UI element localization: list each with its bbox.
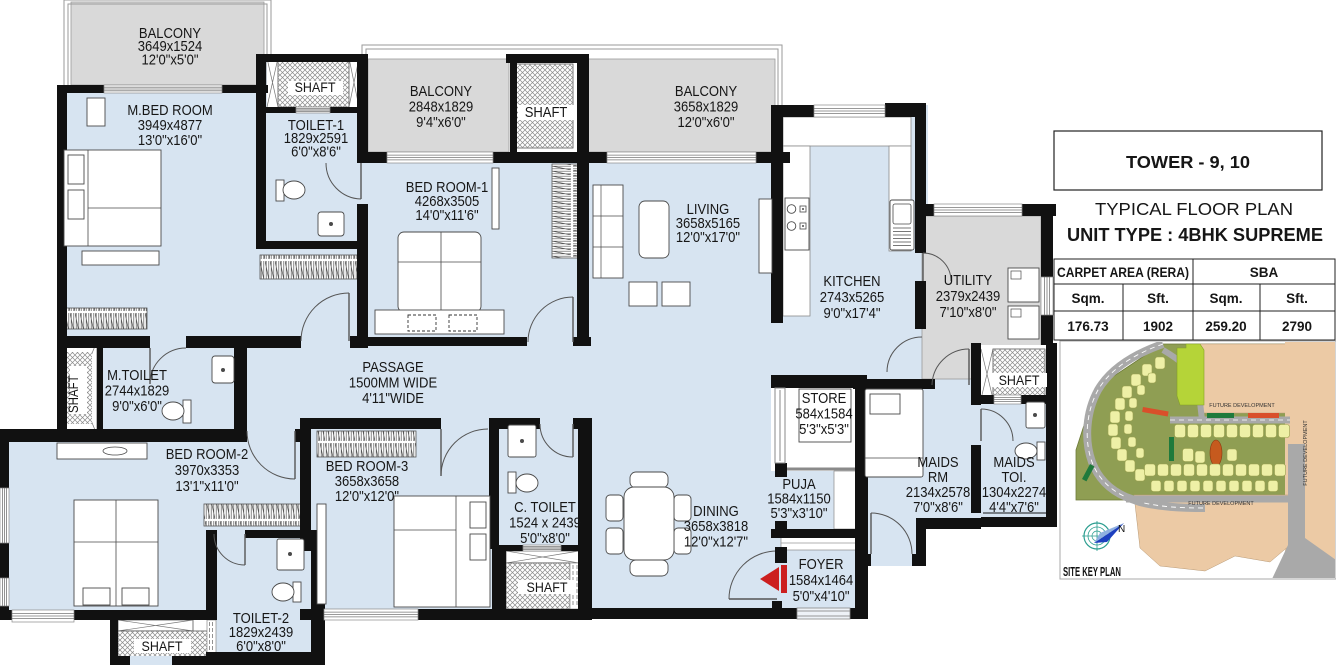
svg-text:2743x5265: 2743x5265 <box>820 288 885 305</box>
svg-text:5'0"x4'10": 5'0"x4'10" <box>793 587 850 604</box>
svg-text:FUTURE DEVELOPMENT: FUTURE DEVELOPMENT <box>1209 403 1275 409</box>
svg-text:7'10"x8'0": 7'10"x8'0" <box>940 303 997 320</box>
svg-text:2379x2439: 2379x2439 <box>936 287 1001 304</box>
svg-text:SBA: SBA <box>1250 265 1279 280</box>
svg-text:12'0"x12'0": 12'0"x12'0" <box>335 487 399 504</box>
svg-text:5'3"x3'10": 5'3"x3'10" <box>771 504 828 521</box>
svg-text:SHAFT: SHAFT <box>295 79 336 95</box>
svg-text:SHAFT: SHAFT <box>999 372 1040 388</box>
svg-text:12'0"x17'0": 12'0"x17'0" <box>676 228 740 245</box>
svg-text:5'3"x5'3": 5'3"x5'3" <box>799 420 849 437</box>
svg-text:13'0"x16'0": 13'0"x16'0" <box>138 131 202 148</box>
svg-text:Sqm.: Sqm. <box>1071 291 1104 306</box>
svg-text:259.20: 259.20 <box>1205 319 1246 334</box>
svg-text:12'0"x6'0": 12'0"x6'0" <box>678 113 735 130</box>
svg-text:1902: 1902 <box>1143 319 1173 334</box>
svg-text:9'4"x6'0": 9'4"x6'0" <box>416 113 466 130</box>
svg-text:SHAFT: SHAFT <box>142 638 183 654</box>
svg-text:7'0"x8'6": 7'0"x8'6" <box>913 498 963 515</box>
svg-text:Sft.: Sft. <box>1286 291 1308 306</box>
svg-text:14'0"x11'6": 14'0"x11'6" <box>415 206 478 223</box>
svg-text:5'0"x8'0": 5'0"x8'0" <box>520 529 570 546</box>
svg-text:176.73: 176.73 <box>1067 319 1109 334</box>
svg-text:SHAFT: SHAFT <box>65 375 81 413</box>
svg-text:4'11"WIDE: 4'11"WIDE <box>362 389 424 406</box>
svg-text:KITCHEN: KITCHEN <box>823 272 880 289</box>
svg-text:9'0"x17'4": 9'0"x17'4" <box>824 304 881 321</box>
svg-text:6'0"x8'0": 6'0"x8'0" <box>236 637 286 654</box>
svg-text:BED ROOM-2: BED ROOM-2 <box>166 445 249 462</box>
svg-text:TOWER - 9, 10: TOWER - 9, 10 <box>1126 152 1250 172</box>
svg-text:3970x3353: 3970x3353 <box>175 461 240 478</box>
svg-text:SHAFT: SHAFT <box>527 579 568 595</box>
svg-text:1584x1464: 1584x1464 <box>789 571 854 588</box>
svg-text:FUTURE DEVELOPMENT: FUTURE DEVELOPMENT <box>1303 420 1309 486</box>
svg-text:Sft.: Sft. <box>1147 291 1169 306</box>
svg-text:CARPET AREA (RERA): CARPET AREA (RERA) <box>1057 265 1189 280</box>
svg-text:2790: 2790 <box>1282 319 1312 334</box>
svg-text:UNIT TYPE : 4BHK SUPREME: UNIT TYPE : 4BHK SUPREME <box>1067 225 1323 245</box>
svg-text:FOYER: FOYER <box>799 555 844 572</box>
svg-text:12'0"x12'7": 12'0"x12'7" <box>684 533 748 550</box>
svg-text:Sqm.: Sqm. <box>1209 291 1242 306</box>
svg-text:FUTURE DEVELOPMENT: FUTURE DEVELOPMENT <box>1188 501 1254 507</box>
svg-text:12'0"x5'0": 12'0"x5'0" <box>142 51 199 68</box>
svg-text:13'1"x11'0": 13'1"x11'0" <box>175 477 238 494</box>
svg-text:SITE KEY PLAN: SITE KEY PLAN <box>1063 564 1121 579</box>
svg-text:9'0"x6'0": 9'0"x6'0" <box>112 397 162 414</box>
svg-text:6'0"x8'6": 6'0"x8'6" <box>291 143 341 160</box>
svg-text:N: N <box>1118 524 1125 535</box>
svg-text:TYPICAL FLOOR PLAN: TYPICAL FLOOR PLAN <box>1095 199 1293 219</box>
svg-text:SHAFT: SHAFT <box>525 103 568 120</box>
svg-text:UTILITY: UTILITY <box>944 271 992 288</box>
